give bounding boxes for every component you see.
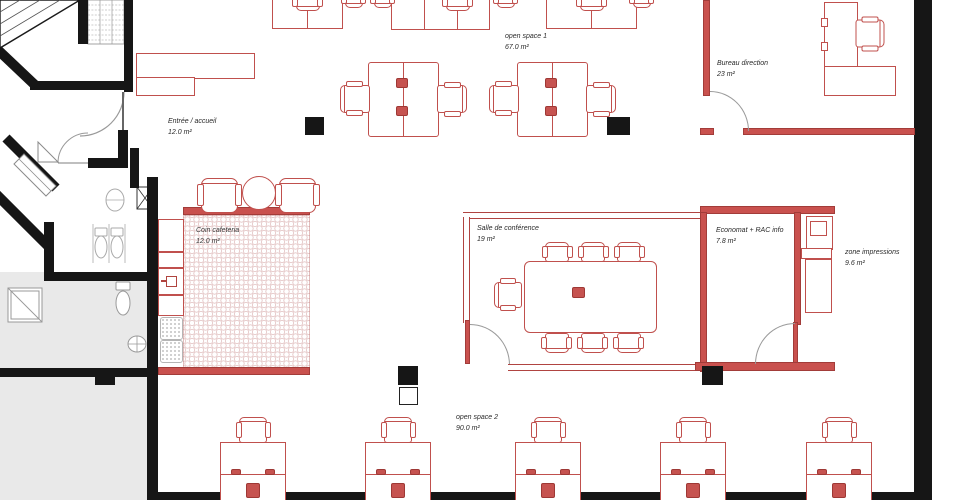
desk-grommet bbox=[396, 106, 408, 116]
room-name: Bureau direction bbox=[717, 59, 768, 70]
door-arc bbox=[470, 324, 510, 365]
wall bbox=[158, 367, 310, 375]
wall-right bbox=[914, 0, 932, 500]
chair bbox=[446, 0, 470, 11]
stool bbox=[160, 340, 183, 363]
kitchen-unit bbox=[158, 295, 184, 316]
desk-tick bbox=[231, 469, 241, 475]
column bbox=[305, 117, 324, 135]
desk bbox=[391, 0, 490, 30]
room-area: 19 m² bbox=[477, 235, 539, 246]
chair bbox=[374, 0, 392, 8]
door-arc bbox=[710, 91, 749, 131]
desk-grommet bbox=[545, 78, 557, 88]
room-name: Entrée / accueil bbox=[168, 117, 216, 128]
desk-tick bbox=[851, 469, 861, 475]
kitchen-unit bbox=[158, 252, 184, 268]
room-label-bureau-direction: Bureau direction 23 m² bbox=[717, 59, 768, 80]
chair bbox=[679, 417, 707, 443]
kitchen-sink-unit bbox=[158, 268, 184, 295]
room-area: 90.0 m² bbox=[456, 424, 498, 435]
room-area: 12.0 m² bbox=[168, 128, 216, 139]
room-label-entree-accueil: Entrée / accueil 12.0 m² bbox=[168, 117, 216, 138]
desk-nub bbox=[821, 18, 828, 27]
room-area: 23 m² bbox=[717, 70, 768, 81]
floor-plan: open space 1 67.0 m² Bureau direction 23… bbox=[0, 0, 960, 500]
desk-grommet bbox=[391, 483, 405, 498]
room-area: 7.8 m² bbox=[716, 237, 784, 248]
wall bbox=[794, 212, 801, 325]
desk-tick bbox=[560, 469, 570, 475]
door-arc bbox=[80, 92, 124, 136]
wall bbox=[743, 128, 915, 135]
round-table bbox=[242, 176, 276, 210]
chair bbox=[345, 0, 363, 8]
desk-grommet bbox=[246, 483, 260, 498]
staircase bbox=[88, 0, 124, 44]
wall bbox=[700, 206, 835, 214]
chair bbox=[545, 242, 569, 262]
chair bbox=[825, 417, 853, 443]
desk-tick bbox=[376, 469, 386, 475]
chair bbox=[497, 0, 515, 8]
reception-counter bbox=[136, 53, 255, 79]
conference-table bbox=[524, 261, 657, 333]
printer-table bbox=[805, 259, 832, 313]
chair bbox=[239, 417, 267, 443]
toilet bbox=[116, 282, 130, 315]
column-base bbox=[399, 387, 418, 405]
kitchen-unit bbox=[158, 219, 184, 252]
chair bbox=[581, 242, 605, 262]
room-label-salle-de-conference: Salle de conférence 19 m² bbox=[477, 224, 539, 245]
desk-nub bbox=[821, 42, 828, 51]
room-label-open-space-1: open space 1 67.0 m² bbox=[505, 32, 547, 53]
shower bbox=[8, 288, 42, 322]
wc-sink bbox=[106, 189, 124, 211]
sink bbox=[128, 336, 146, 352]
chair bbox=[384, 417, 412, 443]
column bbox=[702, 366, 723, 385]
room-name: Coin cafeteria bbox=[196, 226, 239, 237]
desk bbox=[517, 62, 588, 137]
desk-grommet bbox=[686, 483, 700, 498]
chair bbox=[545, 333, 569, 353]
chair bbox=[437, 85, 467, 113]
stair-triangle bbox=[0, 0, 80, 48]
chair bbox=[494, 282, 522, 308]
room-label-open-space-2: open space 2 90.0 m² bbox=[456, 413, 498, 434]
desk-tick bbox=[526, 469, 536, 475]
copier bbox=[806, 216, 833, 250]
desk bbox=[368, 62, 439, 137]
room-name: Economat + RAC info bbox=[716, 226, 784, 237]
chair bbox=[581, 333, 605, 353]
room-area: 12.0 m² bbox=[196, 237, 239, 248]
desk-tick bbox=[410, 469, 420, 475]
wall bbox=[703, 0, 710, 96]
chair bbox=[856, 20, 885, 48]
printer-shelf bbox=[801, 248, 832, 259]
table-grommet bbox=[572, 287, 585, 298]
door-arc bbox=[755, 323, 795, 364]
chair bbox=[340, 85, 370, 113]
desk-tick bbox=[265, 469, 275, 475]
chair bbox=[296, 0, 320, 11]
stool bbox=[160, 317, 183, 340]
room-name: zone impressions bbox=[845, 248, 899, 259]
wall bbox=[508, 364, 707, 371]
faucet-icon bbox=[166, 276, 177, 287]
desk-return bbox=[824, 66, 896, 96]
room-area: 9.6 m² bbox=[845, 259, 899, 270]
room-name: Salle de conférence bbox=[477, 224, 539, 235]
armchair bbox=[279, 178, 316, 213]
chair bbox=[617, 242, 641, 262]
room-label-economat: Economat + RAC info 7.8 m² bbox=[716, 226, 784, 247]
armchair bbox=[201, 178, 238, 213]
reception-counter-return bbox=[136, 77, 195, 96]
desk-tick bbox=[671, 469, 681, 475]
room-label-coin-cafeteria: Coin cafeteria 12.0 m² bbox=[196, 226, 239, 247]
chair bbox=[489, 85, 519, 113]
wall bbox=[700, 212, 707, 372]
wall bbox=[463, 212, 707, 219]
column bbox=[607, 117, 630, 135]
wall bbox=[463, 217, 470, 323]
column bbox=[398, 366, 418, 385]
room-name: open space 1 bbox=[505, 32, 547, 43]
chair bbox=[633, 0, 651, 8]
chair bbox=[617, 333, 641, 353]
desk-grommet bbox=[396, 78, 408, 88]
desk-grommet bbox=[545, 106, 557, 116]
room-label-zone-impressions: zone impressions 9.6 m² bbox=[845, 248, 899, 269]
chair bbox=[580, 0, 604, 11]
chair bbox=[586, 85, 616, 113]
desk bbox=[824, 2, 858, 68]
desk-grommet bbox=[832, 483, 846, 498]
desk-tick bbox=[705, 469, 715, 475]
room-area: 67.0 m² bbox=[505, 43, 547, 54]
desk-tick bbox=[817, 469, 827, 475]
door-arc bbox=[58, 133, 88, 163]
desk-grommet bbox=[541, 483, 555, 498]
chair bbox=[534, 417, 562, 443]
room-name: open space 2 bbox=[456, 413, 498, 424]
